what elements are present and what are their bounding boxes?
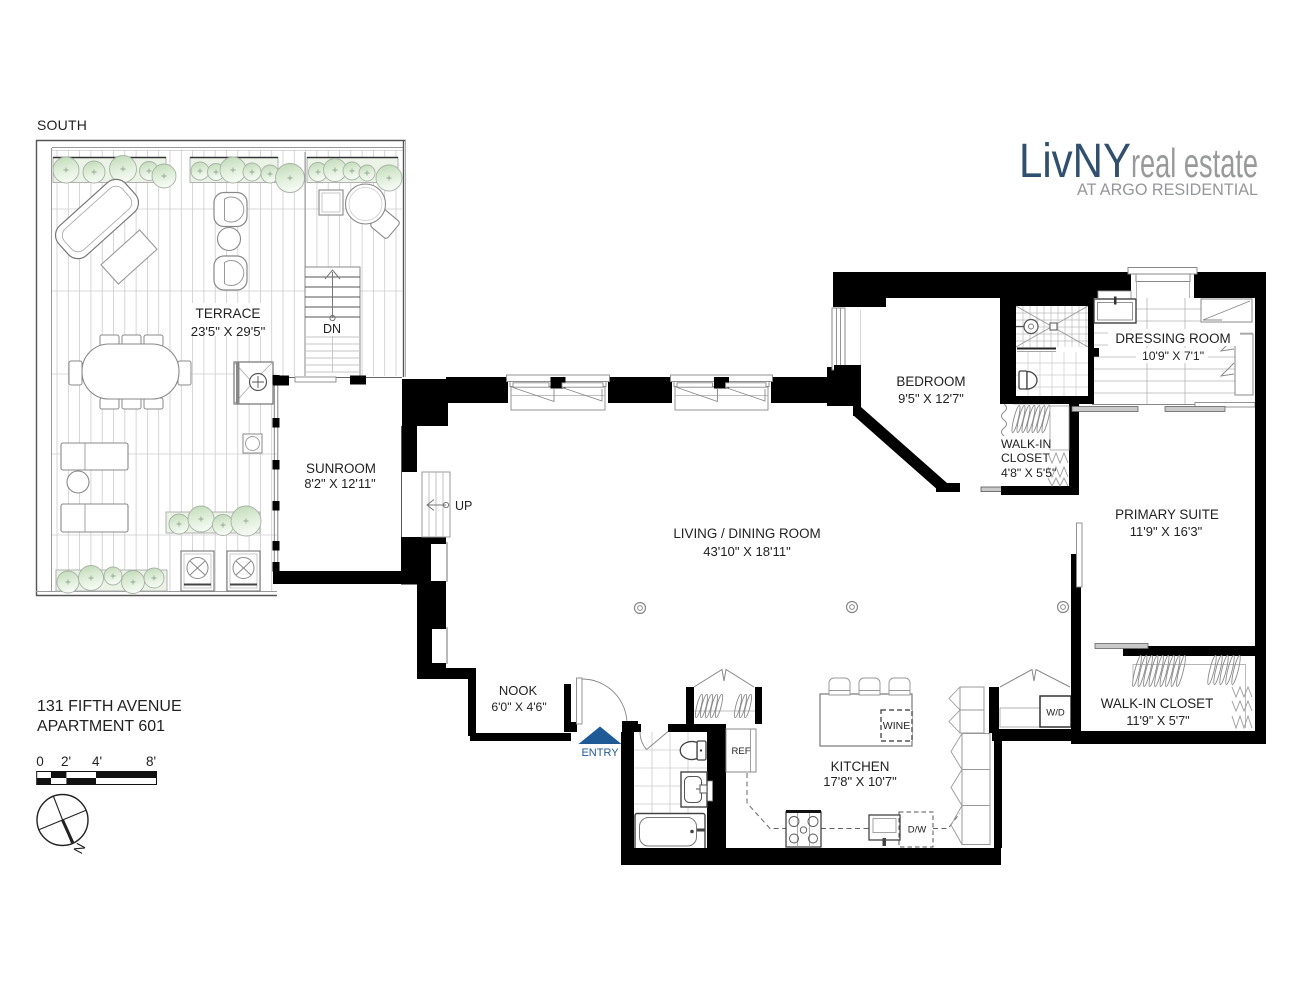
svg-text:BEDROOM: BEDROOM bbox=[896, 374, 965, 389]
svg-text:DRESSING ROOM: DRESSING ROOM bbox=[1115, 331, 1230, 346]
svg-text:D/W: D/W bbox=[908, 825, 927, 836]
svg-text:0: 0 bbox=[36, 754, 44, 769]
svg-text:APARTMENT 601: APARTMENT 601 bbox=[37, 718, 165, 735]
svg-text:8'2" X 12'11": 8'2" X 12'11" bbox=[304, 476, 375, 491]
svg-text:4': 4' bbox=[92, 754, 102, 769]
svg-text:SUNROOM: SUNROOM bbox=[306, 461, 376, 476]
svg-text:8': 8' bbox=[146, 754, 156, 769]
svg-text:17'8" X 10'7": 17'8" X 10'7" bbox=[823, 774, 897, 789]
svg-text:W/D: W/D bbox=[1046, 708, 1065, 719]
svg-text:WALK-IN CLOSET: WALK-IN CLOSET bbox=[1101, 696, 1214, 711]
svg-text:PRIMARY SUITE: PRIMARY SUITE bbox=[1115, 507, 1219, 522]
svg-text:SOUTH: SOUTH bbox=[37, 117, 87, 133]
svg-text:43'10" X 18'11": 43'10" X 18'11" bbox=[703, 544, 791, 559]
svg-text:DN: DN bbox=[323, 322, 341, 336]
svg-text:REF: REF bbox=[732, 746, 751, 757]
svg-text:KITCHEN: KITCHEN bbox=[831, 759, 890, 774]
svg-text:9'5" X 12'7": 9'5" X 12'7" bbox=[898, 391, 964, 406]
svg-text:LIVING / DINING ROOM: LIVING / DINING ROOM bbox=[673, 526, 820, 541]
svg-text:4'8" X 5'5": 4'8" X 5'5" bbox=[1001, 466, 1056, 480]
svg-text:UP: UP bbox=[455, 499, 472, 513]
svg-text:AT ARGO RESIDENTIAL: AT ARGO RESIDENTIAL bbox=[1077, 181, 1258, 199]
svg-text:11'9" X 5'7": 11'9" X 5'7" bbox=[1126, 714, 1189, 728]
svg-text:CLOSET: CLOSET bbox=[1001, 451, 1050, 465]
svg-text:real estate: real estate bbox=[1131, 140, 1258, 186]
svg-text:23'5" X 29'5": 23'5" X 29'5" bbox=[191, 324, 266, 339]
svg-text:TERRACE: TERRACE bbox=[196, 306, 261, 321]
svg-text:WALK-IN: WALK-IN bbox=[1001, 437, 1051, 451]
svg-text:WINE: WINE bbox=[883, 720, 910, 732]
svg-text:NOOK: NOOK bbox=[499, 683, 538, 698]
svg-text:2': 2' bbox=[61, 754, 71, 769]
svg-text:6'0" X 4'6": 6'0" X 4'6" bbox=[491, 700, 546, 714]
svg-text:11'9" X 16'3": 11'9" X 16'3" bbox=[1130, 524, 1203, 539]
svg-text:131 FIFTH AVENUE: 131 FIFTH AVENUE bbox=[37, 698, 182, 715]
svg-text:ENTRY: ENTRY bbox=[581, 747, 619, 759]
svg-text:10'9" X 7'1": 10'9" X 7'1" bbox=[1142, 349, 1204, 363]
